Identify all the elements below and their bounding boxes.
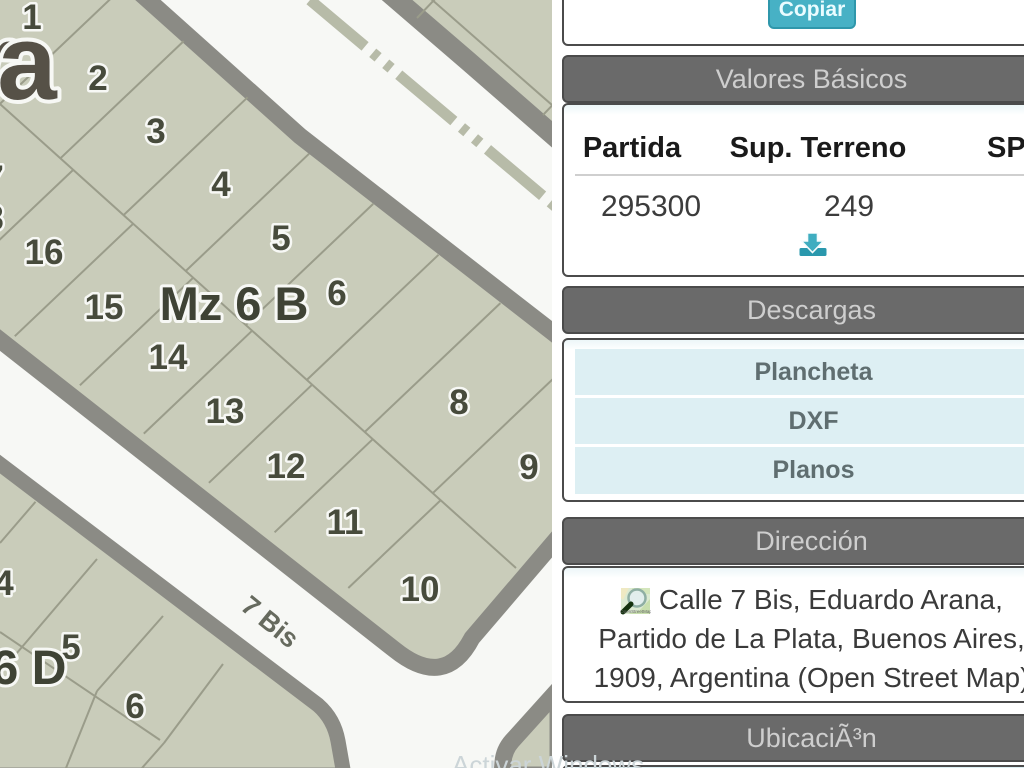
svg-text:16: 16 bbox=[25, 233, 64, 272]
svg-text:8: 8 bbox=[449, 383, 468, 422]
svg-text:15: 15 bbox=[85, 288, 124, 327]
svg-text:9: 9 bbox=[519, 448, 538, 487]
svg-text:a: a bbox=[0, 2, 58, 122]
svg-text:5: 5 bbox=[271, 219, 290, 258]
svg-text:11: 11 bbox=[327, 503, 364, 542]
svg-text:10: 10 bbox=[401, 570, 440, 609]
svg-text:14: 14 bbox=[149, 338, 188, 377]
svg-text:OpenStreetMap: OpenStreetMap bbox=[620, 609, 651, 614]
svg-text:13: 13 bbox=[206, 392, 245, 431]
svg-text:12: 12 bbox=[267, 447, 306, 486]
svg-text:7: 7 bbox=[0, 159, 4, 198]
svg-text:6: 6 bbox=[327, 274, 346, 313]
svg-text:6 D: 6 D bbox=[0, 642, 66, 695]
svg-text:2: 2 bbox=[88, 59, 107, 98]
svg-text:Mz 6 B: Mz 6 B bbox=[160, 277, 309, 330]
svg-text:4: 4 bbox=[211, 165, 231, 204]
svg-text:6: 6 bbox=[125, 687, 144, 726]
svg-text:3: 3 bbox=[146, 112, 165, 151]
svg-text:8: 8 bbox=[0, 199, 4, 238]
svg-text:4: 4 bbox=[0, 564, 14, 603]
